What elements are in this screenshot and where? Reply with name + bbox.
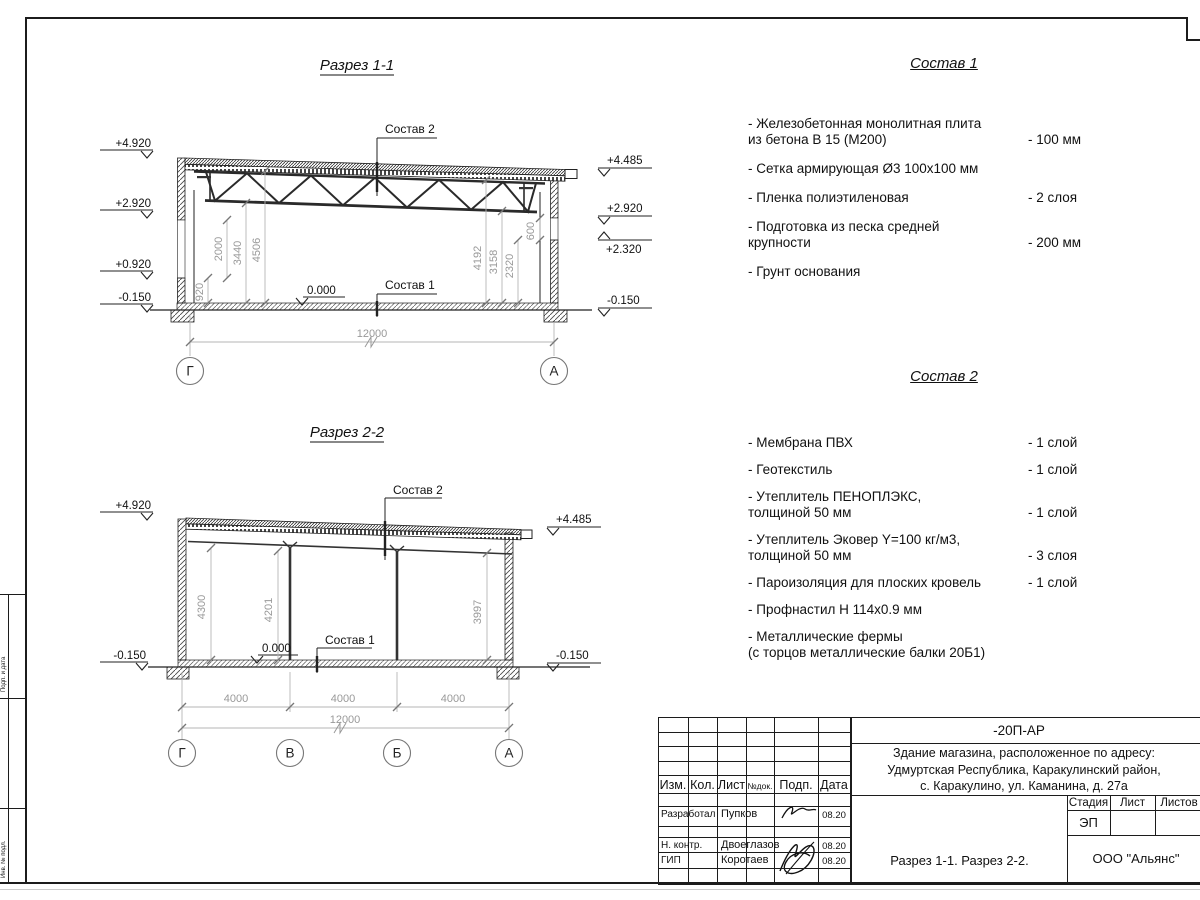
tb-line [658, 746, 850, 747]
sheet-edge [0, 889, 1200, 890]
tb-line [658, 826, 850, 827]
svg-text:+4.485: +4.485 [607, 155, 643, 167]
svg-text:-0.150: -0.150 [113, 650, 146, 662]
tb-line [774, 717, 775, 883]
svg-text:-0.150: -0.150 [118, 292, 151, 304]
stage-value: ЭП [1067, 815, 1110, 830]
tb-name: Двоеглазов [721, 839, 779, 851]
svg-text:Г: Г [186, 364, 194, 379]
elevation-marks-right-2: +4.485 -0.150 [547, 514, 601, 671]
svg-text:В: В [285, 746, 294, 761]
tb-line [717, 717, 718, 883]
list-item: - Железобетонная монолитная плита из бет… [748, 116, 1180, 148]
svg-text:4192: 4192 [472, 246, 484, 270]
tb-col-header: Подп. [774, 778, 818, 792]
list-item: - Утеплитель Эковер Y=100 кг/м3, толщино… [748, 532, 1180, 564]
tb-date: 08.20 [818, 810, 850, 821]
list-item: - Металлические фермы (с торцов металлич… [748, 629, 1180, 661]
svg-text:А: А [549, 364, 558, 379]
callout-sostav1: Состав 1 [377, 278, 437, 317]
sheet-col-header: Лист [1110, 797, 1155, 809]
tb-col-header: Кол. [688, 778, 717, 792]
section2-title: Разрез 2-2 [310, 424, 385, 441]
svg-text:4506: 4506 [251, 238, 263, 262]
frame-line [0, 698, 25, 699]
svg-text:+4.920: +4.920 [116, 500, 152, 512]
svg-text:12000: 12000 [330, 714, 361, 726]
svg-text:3997: 3997 [472, 600, 484, 624]
tb-role: Н. контр. [661, 840, 702, 851]
tb-line [658, 761, 850, 762]
tb-name: Коротаев [721, 854, 769, 866]
list-item: - Геотекстиль - 1 слой [748, 462, 1180, 478]
tb-line [658, 793, 850, 794]
composition-list-1: Состав 1 - Железобетонная монолитная пли… [748, 55, 1180, 293]
tb-line [658, 806, 850, 807]
svg-text:Состав 1: Состав 1 [325, 633, 375, 647]
list-item: - Подготовка из песка средней крупности … [748, 219, 1180, 251]
tb-line [658, 852, 850, 853]
svg-text:920: 920 [194, 283, 206, 301]
tb-date: 08.20 [818, 856, 850, 867]
list-item: - Пароизоляция для плоских кровель - 1 с… [748, 575, 1180, 591]
frame-line [1186, 39, 1200, 41]
svg-text:А: А [504, 746, 513, 761]
svg-text:Г: Г [178, 746, 186, 761]
tb-col-header: Изм. [658, 778, 688, 792]
vertical-dims: 920 2000 3440 4506 4192 3158 2320 [194, 167, 544, 307]
wall-right [540, 178, 558, 303]
zero-level-mark: 0.000 [296, 285, 345, 305]
frame-line [25, 17, 1187, 19]
wall-left-2 [178, 519, 186, 660]
section1-title: Разрез 1-1 [320, 57, 394, 74]
svg-text:4000: 4000 [224, 693, 248, 705]
stamp-vertical-label: Подп. и дата [1, 657, 7, 692]
svg-text:3440: 3440 [232, 241, 244, 265]
stamp-vertical-label: Инв. № подл. [1, 841, 7, 878]
svg-text:+0.920: +0.920 [116, 259, 152, 271]
callout-sostav2: Состав 2 [377, 122, 437, 196]
svg-text:+2.920: +2.920 [607, 203, 643, 215]
drawing-title: Разрез 1-1. Разрез 2-2. [852, 853, 1067, 868]
composition-list-2: Состав 2 - Мембрана ПВХ - 1 слой - Геоте… [748, 368, 1180, 672]
svg-text:-0.150: -0.150 [607, 295, 640, 307]
svg-text:0.000: 0.000 [307, 285, 336, 297]
tb-line [1067, 835, 1200, 836]
svg-text:Состав 2: Состав 2 [385, 122, 435, 136]
tb-line [658, 732, 850, 733]
list-item: - Мембрана ПВХ - 1 слой [748, 435, 1180, 451]
tb-role: ГИП [661, 855, 681, 866]
svg-text:3158: 3158 [488, 250, 500, 274]
tb-col-header: №док. [746, 781, 774, 791]
svg-text:0.000: 0.000 [262, 643, 291, 655]
floor-slab-2 [148, 660, 590, 679]
tb-col-header: Лист [717, 778, 746, 792]
tb-line [658, 775, 850, 776]
floor-slab [150, 303, 592, 322]
bay-dims: 4000 4000 4000 12000 [178, 672, 513, 740]
frame-line [8, 594, 9, 883]
svg-text:12000: 12000 [357, 328, 388, 340]
elevation-marks-left-2: +4.920 -0.150 [100, 500, 153, 670]
svg-text:2000: 2000 [213, 237, 225, 261]
frame-line [25, 17, 27, 883]
tb-date: 08.20 [818, 841, 850, 852]
section-1-1: Разрез 1-1 [100, 57, 652, 385]
list-item: - Сетка армирующая Ø3 100х100 мм [748, 161, 1180, 177]
svg-text:Б: Б [393, 746, 402, 761]
tb-line [1067, 810, 1200, 811]
document-code: -20П-АР [852, 723, 1186, 738]
project-description: Здание магазина, расположенное по адресу… [852, 745, 1196, 795]
wall-left [178, 158, 195, 303]
svg-text:+2.920: +2.920 [116, 198, 152, 210]
svg-text:Состав 2: Состав 2 [393, 483, 443, 497]
list-item: - Грунт основания [748, 264, 1180, 280]
drawing-sheet: Разрез 1-1 [0, 0, 1200, 900]
list2-title: Состав 2 [748, 368, 1180, 385]
list1-title: Состав 1 [748, 55, 1180, 72]
roof-slab-2 [186, 518, 532, 554]
tb-name: Пупков [721, 808, 757, 820]
section-2-2: Разрез 2-2 [100, 424, 601, 767]
tb-line [850, 743, 1200, 744]
company-name: ООО "Альянс" [1067, 851, 1200, 866]
svg-text:Состав 1: Состав 1 [385, 278, 435, 292]
list-item: - Профнастил Н 114х0.9 мм [748, 602, 1180, 618]
svg-text:+2.320: +2.320 [606, 244, 642, 256]
frame-line [0, 594, 25, 595]
tb-role: Разработал [661, 809, 715, 820]
tb-col-header: Дата [818, 778, 850, 792]
svg-text:-0.150: -0.150 [556, 650, 589, 662]
svg-text:4201: 4201 [263, 598, 275, 622]
svg-text:600: 600 [525, 222, 537, 240]
frame-line [0, 808, 25, 809]
axis-bubbles: Г А [177, 358, 568, 385]
overall-dim: 12000 [186, 314, 558, 356]
svg-text:2320: 2320 [504, 254, 516, 278]
tb-line [658, 837, 850, 838]
list-item: - Утеплитель ПЕНОПЛЭКС, толщиной 50 мм -… [748, 489, 1180, 521]
svg-text:+4.485: +4.485 [556, 514, 592, 526]
wall-right-2 [505, 533, 513, 660]
axis-bubbles-2: Г В Б А [169, 740, 523, 767]
svg-text:+4.920: +4.920 [116, 138, 152, 150]
svg-text:4000: 4000 [441, 693, 465, 705]
elevation-marks-right: +4.485 +2.920 +2.320 -0.150 [598, 155, 652, 316]
tb-line [658, 868, 850, 869]
svg-text:4000: 4000 [331, 693, 355, 705]
stage-col-header: Стадия [1067, 797, 1110, 809]
sheets-col-header: Листов [1155, 797, 1200, 809]
tb-line [688, 717, 689, 883]
frame-line [1186, 17, 1188, 40]
svg-text:4300: 4300 [196, 595, 208, 619]
elevation-marks-left: +4.920 +2.920 +0.920 -0.150 [100, 138, 153, 312]
list-item: - Пленка полиэтиленовая - 2 слоя [748, 190, 1180, 206]
